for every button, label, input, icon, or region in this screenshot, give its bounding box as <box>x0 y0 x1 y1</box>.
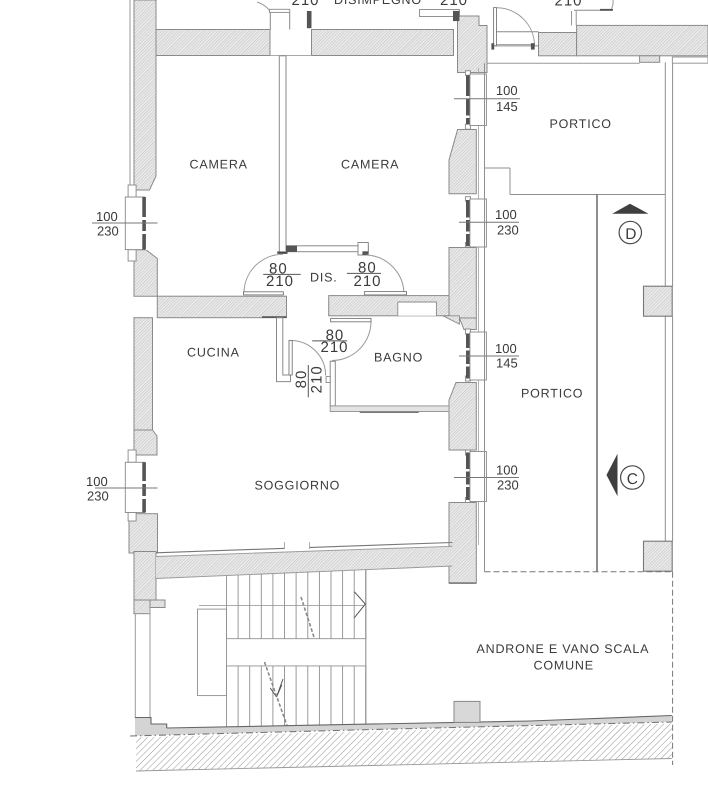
svg-text:100: 100 <box>496 463 518 478</box>
svg-text:100: 100 <box>86 474 108 489</box>
svg-text:CAMERA: CAMERA <box>341 158 399 172</box>
svg-text:210: 210 <box>440 0 468 9</box>
svg-text:100: 100 <box>496 83 518 98</box>
svg-text:PORTICO: PORTICO <box>550 117 612 131</box>
svg-text:ANDRONE E VANO SCALA: ANDRONE E VANO SCALA <box>477 642 650 656</box>
svg-text:D: D <box>625 226 636 243</box>
svg-text:DISIMPEGNO: DISIMPEGNO <box>334 0 422 7</box>
svg-text:145: 145 <box>496 99 518 114</box>
svg-text:210: 210 <box>354 273 382 290</box>
svg-text:230: 230 <box>87 489 109 504</box>
svg-text:PORTICO: PORTICO <box>521 387 583 401</box>
svg-text:SOGGIORNO: SOGGIORNO <box>255 479 341 493</box>
svg-text:BAGNO: BAGNO <box>374 351 423 365</box>
svg-text:210: 210 <box>308 365 325 393</box>
svg-text:COMUNE: COMUNE <box>534 659 594 673</box>
svg-text:DIS.: DIS. <box>310 271 338 285</box>
svg-text:100: 100 <box>495 207 517 222</box>
svg-text:CUCINA: CUCINA <box>187 346 240 360</box>
svg-text:CAMERA: CAMERA <box>190 158 248 172</box>
svg-text:210: 210 <box>292 0 320 9</box>
svg-text:210: 210 <box>555 0 583 10</box>
svg-text:C: C <box>627 471 638 488</box>
svg-text:210: 210 <box>266 273 294 290</box>
svg-text:210: 210 <box>321 339 349 356</box>
svg-text:230: 230 <box>97 224 119 239</box>
svg-text:100: 100 <box>96 209 118 224</box>
svg-text:230: 230 <box>497 223 519 238</box>
svg-text:100: 100 <box>495 341 517 356</box>
svg-text:145: 145 <box>496 356 518 371</box>
svg-text:230: 230 <box>497 478 519 493</box>
